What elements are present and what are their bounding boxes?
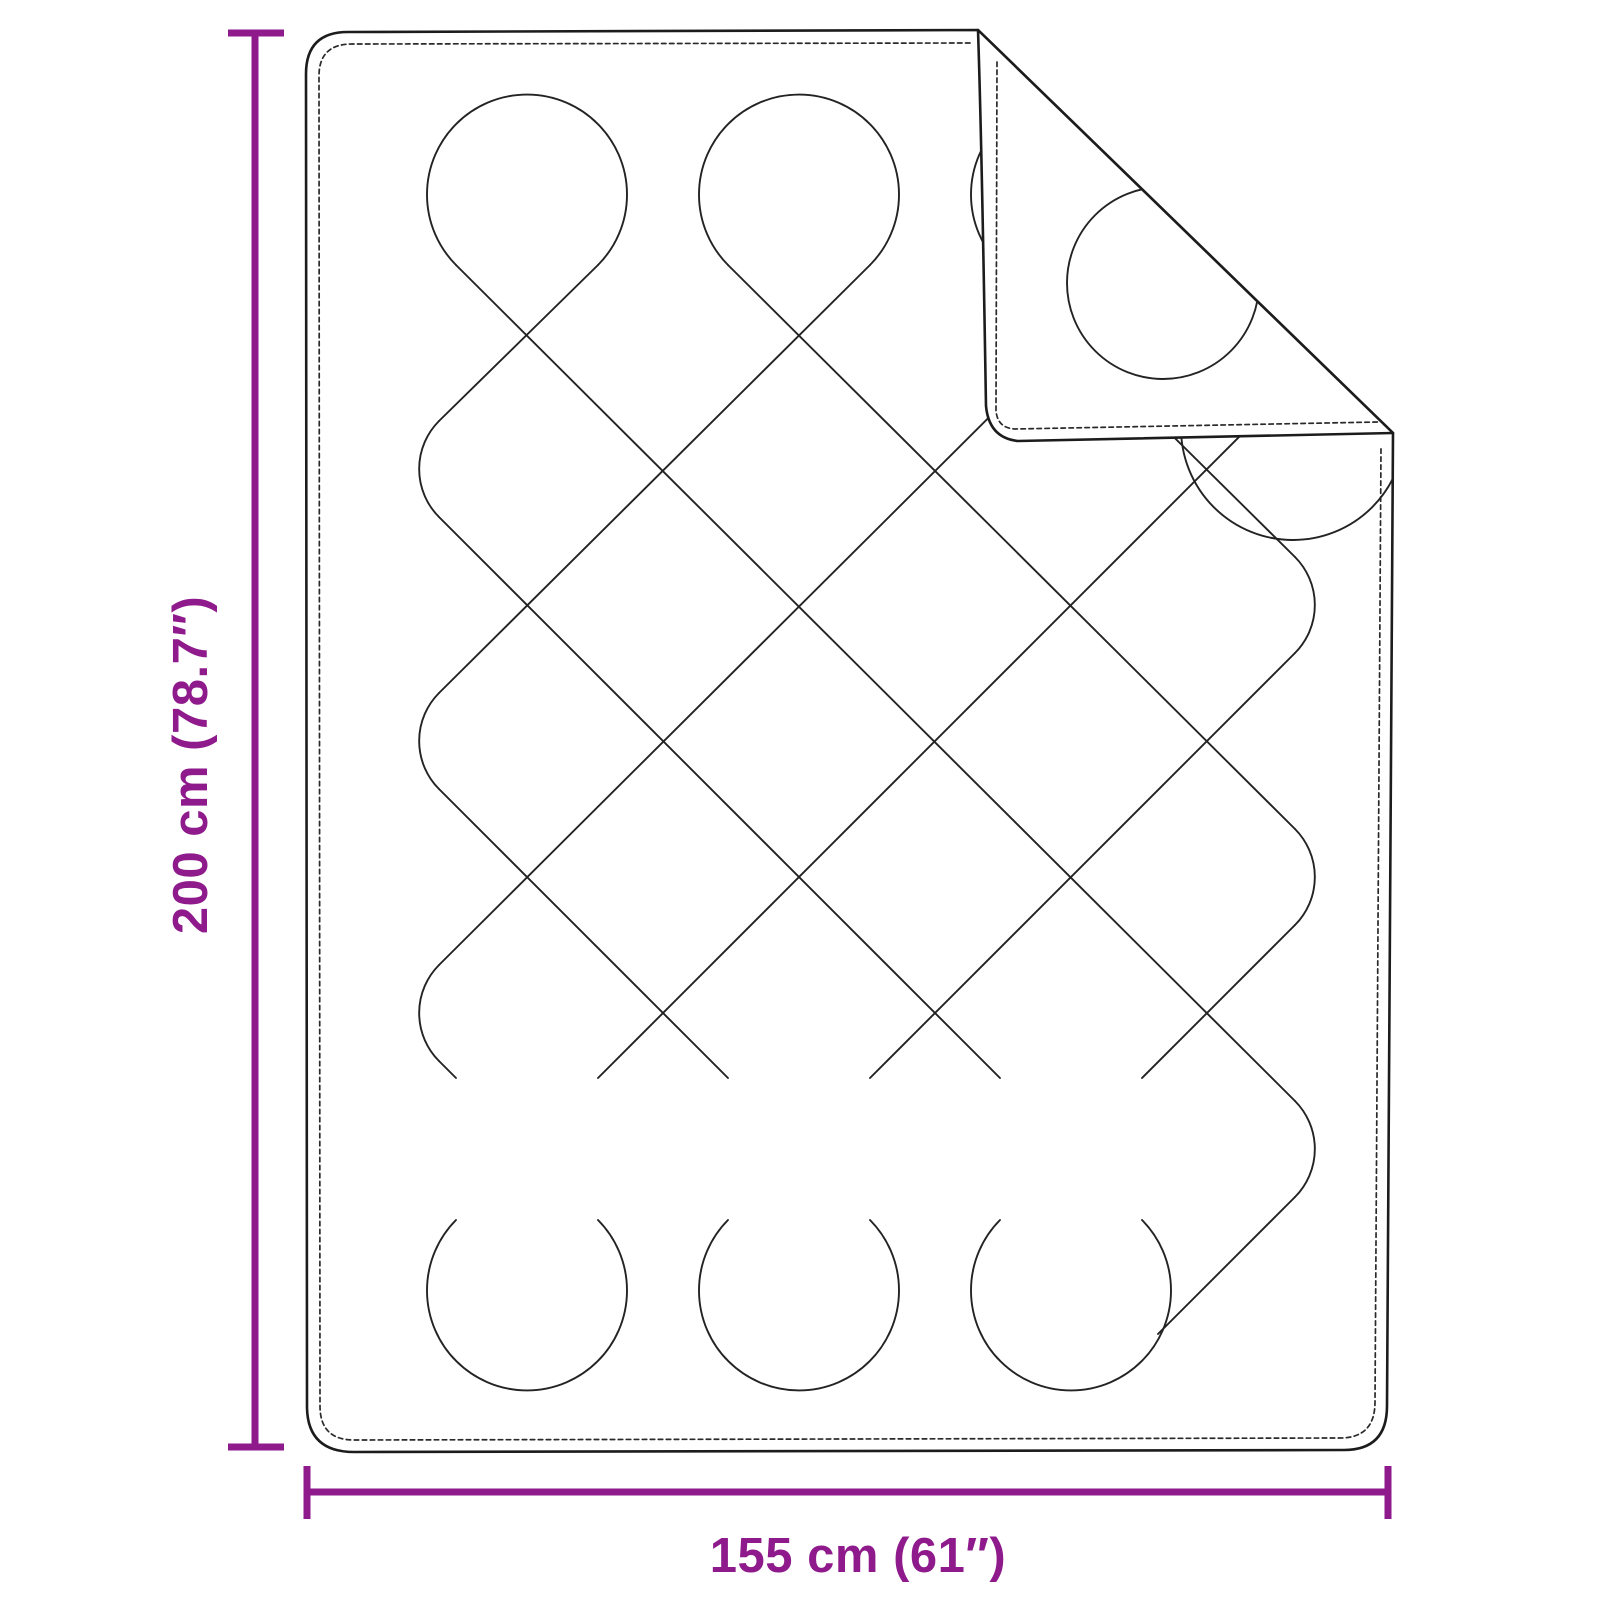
width-dimension-label: 155 cm (61″) bbox=[710, 1529, 1006, 1583]
product-dimension-diagram: 200 cm (78.7″) 155 cm (61″) bbox=[0, 0, 1600, 1600]
height-dimension-line bbox=[228, 33, 284, 1447]
blanket-outline bbox=[306, 30, 1393, 1452]
height-dimension-label: 200 cm (78.7″) bbox=[164, 596, 218, 934]
folded-corner bbox=[978, 30, 1393, 441]
diagram-canvas: 200 cm (78.7″) 155 cm (61″) bbox=[0, 0, 1600, 1600]
width-dimension-line bbox=[307, 1466, 1388, 1519]
